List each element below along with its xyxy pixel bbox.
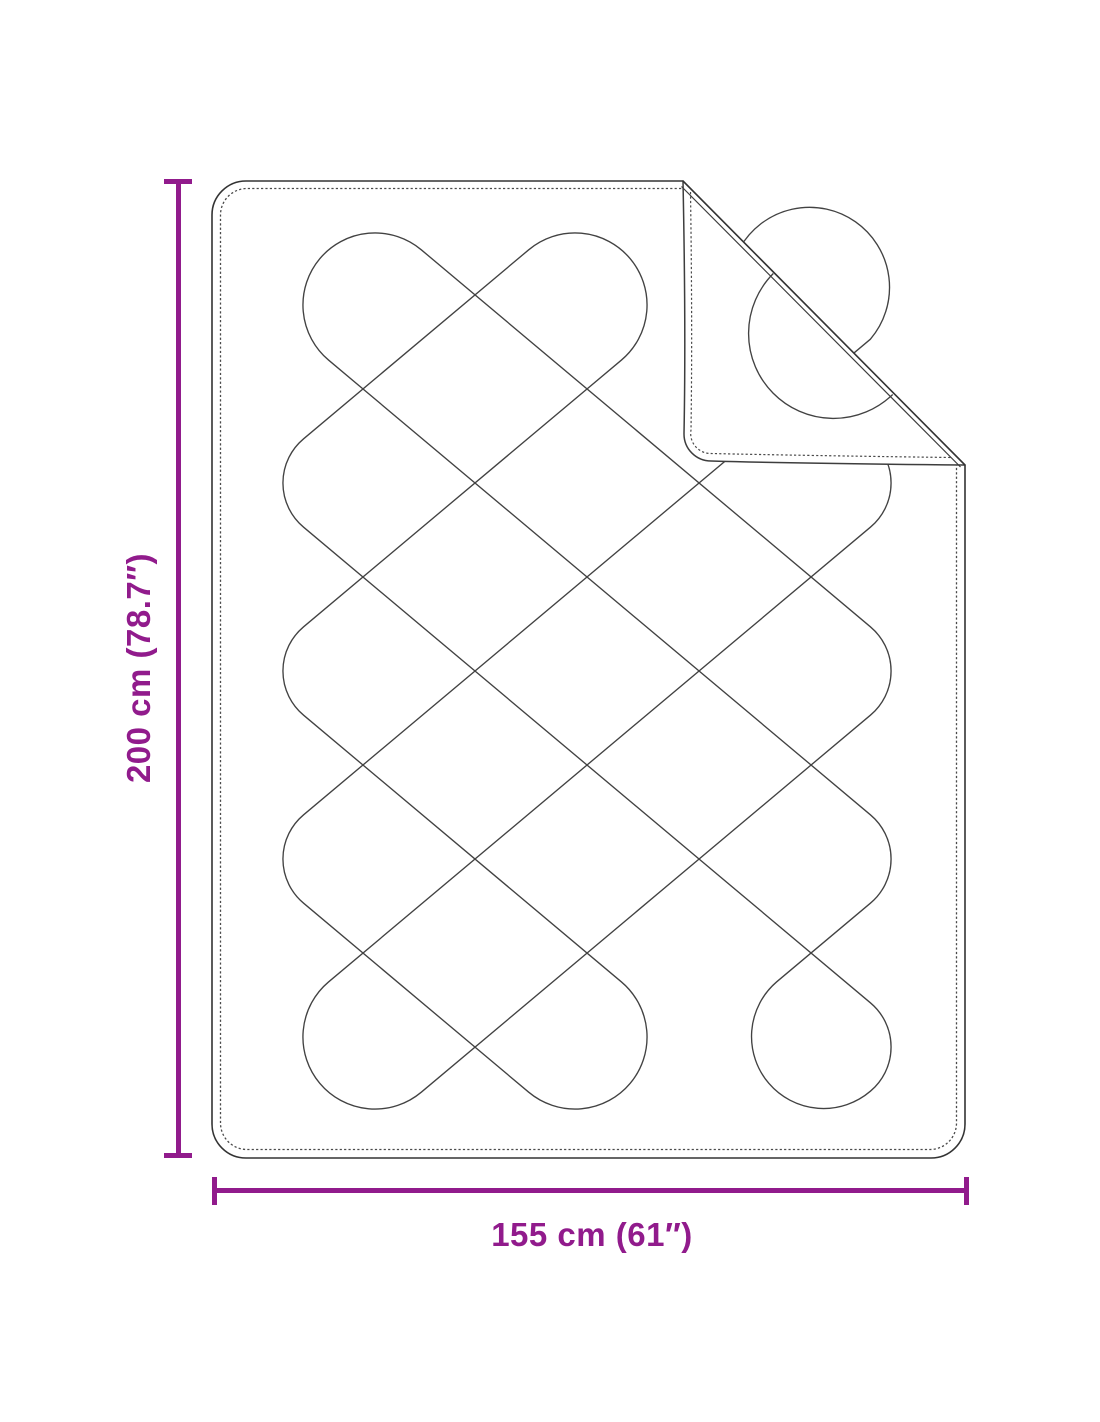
blanket-line-drawing	[0, 0, 1100, 1422]
width-dimension-cap-left	[212, 1177, 217, 1205]
height-dimension-cap-top	[164, 179, 192, 184]
blanket-outline	[212, 181, 965, 1158]
height-dimension-cap-bottom	[164, 1153, 192, 1158]
width-dimension-cap-right	[964, 1177, 969, 1205]
height-dimension-line	[176, 181, 181, 1157]
width-dimension-label: 155 cm (61″)	[491, 1216, 693, 1254]
product-dimension-diagram: 200 cm (78.7″) 155 cm (61″)	[0, 0, 1100, 1422]
blanket-stitch-border	[221, 189, 957, 1150]
height-dimension-label: 200 cm (78.7″)	[120, 553, 158, 783]
width-dimension-line	[214, 1188, 966, 1193]
folded-corner	[682, 181, 966, 467]
